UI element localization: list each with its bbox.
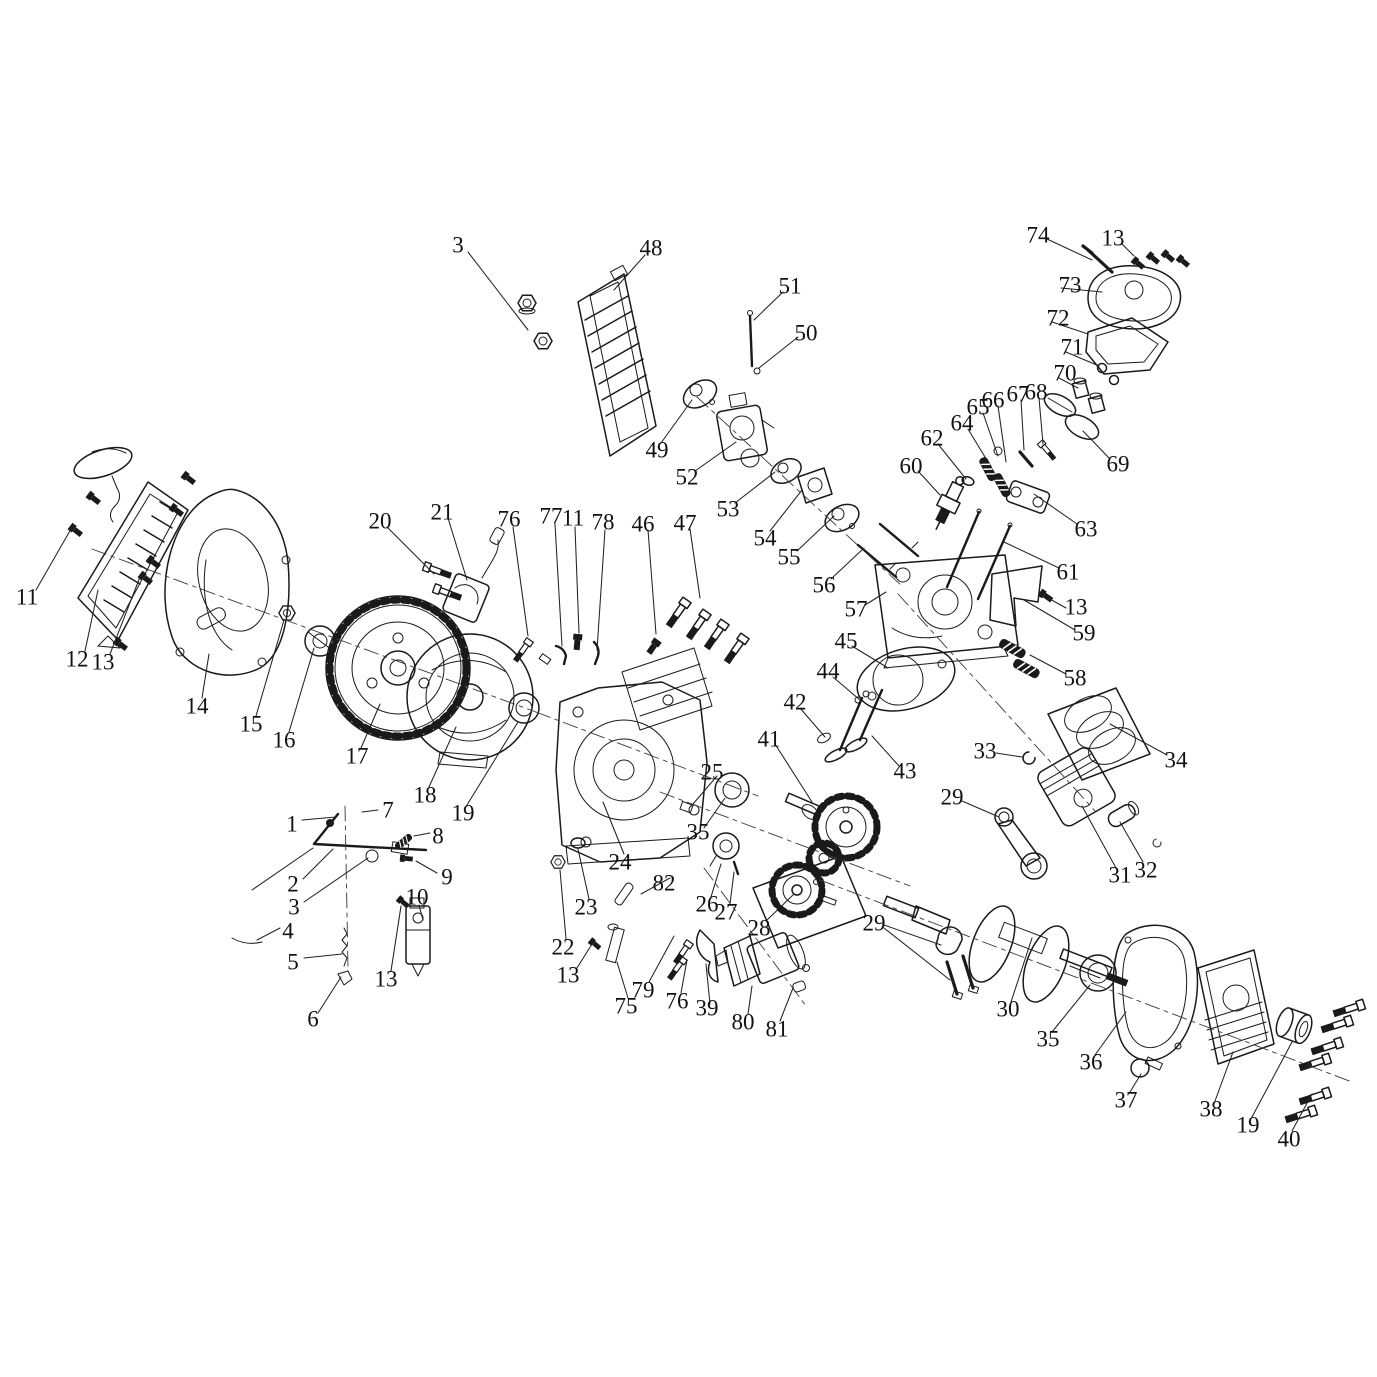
throttle-wire [232,938,262,943]
part-number-35: 35 [1037,1027,1060,1052]
part-number-30: 30 [997,997,1020,1022]
leader-line [1252,1042,1292,1117]
part-number-33: 33 [974,739,997,764]
leader-line [303,849,333,879]
leader-line [648,530,656,634]
part-number-8: 8 [432,824,444,849]
part-number-3: 3 [288,895,300,920]
insulator-spacer [798,468,832,503]
part-number-42: 42 [784,690,807,715]
head-bolts [645,597,749,665]
leader-line [962,801,999,817]
valve-cover-screws [1131,249,1191,271]
leader-line [85,590,98,651]
leader-line [555,524,562,646]
part-number-58: 58 [1064,666,1087,691]
leader-line [318,977,341,1013]
part-number-13: 13 [1102,226,1125,251]
part-number-21: 21 [431,500,454,525]
part-number-7: 7 [382,798,394,823]
leader-line [831,548,864,579]
leader-line [575,527,579,633]
leader-line [1082,806,1116,868]
leader-line [759,337,798,368]
part-number-2: 2 [287,872,299,897]
part-number-11: 11 [16,585,38,610]
part-number-4: 4 [282,919,294,944]
plug-washer [961,475,975,487]
leader-line [110,577,140,654]
part-number-13: 13 [92,650,115,675]
part-number-18: 18 [414,783,437,808]
push-rods [947,509,1012,599]
diagram-page: 1233456789101111121313131313141516171819… [0,0,1377,1377]
part-number-66: 66 [982,388,1005,413]
spring-seat [816,731,832,745]
pivot-stud [1037,440,1057,462]
part-number-73: 73 [1059,273,1082,298]
breather-screw [588,937,602,951]
crankcase-cover [1198,950,1274,1064]
part-number-51: 51 [779,274,802,299]
part-number-9: 9 [441,865,453,890]
leader-line [1021,400,1024,450]
leader-line [468,252,528,330]
bracket-bolt [672,940,693,966]
intake-gasket [678,374,721,413]
part-number-69: 69 [1107,452,1130,477]
part-number-22: 22 [552,935,575,960]
part-number-27: 27 [715,900,738,925]
rocker-bracket [1005,480,1050,514]
leader-line [775,744,812,802]
valve-tappets [1072,378,1104,413]
part-number-62: 62 [921,426,944,451]
leader-line [414,833,430,836]
part-number-24: 24 [609,850,633,875]
part-number-5: 5 [287,950,299,975]
leader-line [1011,938,1032,1002]
rocker-pivot-pin [1020,452,1032,466]
part-number-25: 25 [701,760,724,785]
part-number-46: 46 [632,512,655,537]
part-number-82: 82 [653,871,676,896]
part-number-56: 56 [813,573,836,598]
part-number-77: 77 [540,504,563,529]
part-number-16: 16 [273,728,296,753]
leader-line [865,592,886,605]
small-hardware-row [512,634,598,665]
pin-clip [1153,839,1161,847]
leader-line [597,530,605,650]
cylinder-studs [858,524,918,577]
head-gasket [850,636,963,721]
ball-bearing-front [509,693,539,723]
leader-line [257,928,280,940]
connecting-rod [995,808,1047,879]
part-number-76: 76 [666,989,689,1014]
spark-plug [927,473,970,534]
cooling-fan [407,634,533,768]
leader-line [202,654,209,698]
governor-spring [342,928,347,966]
part-number-79: 79 [632,978,655,1003]
stud-screw [754,368,760,374]
linkage-screw [400,854,413,862]
piston-pin [1106,800,1141,829]
oil-sensor-unit [406,898,430,976]
part-number-38: 38 [1200,1097,1223,1122]
shroud-screw [1038,589,1054,604]
part-number-44: 44 [817,659,841,684]
centerline [92,549,536,712]
part-number-52: 52 [676,465,699,490]
part-number-12: 12 [66,647,89,672]
leader-line [362,810,378,812]
part-number-15: 15 [240,712,263,737]
part-number-10: 10 [406,885,429,910]
part-number-63: 63 [1075,517,1098,542]
part-number-1: 1 [286,812,298,837]
housing-screws [68,471,197,652]
part-number-28: 28 [748,916,771,941]
part-number-81: 81 [766,1017,789,1042]
leader-line [603,802,624,854]
part-number-19: 19 [1237,1113,1260,1138]
leader-line [304,954,342,958]
part-number-17: 17 [346,744,369,769]
leader-line [1004,542,1059,568]
part-number-40: 40 [1278,1127,1301,1152]
leader-line [1120,822,1143,862]
rod-cap-and-bolts [936,927,979,999]
leader-line [1048,598,1066,608]
part-number-29: 29 [863,911,886,936]
exploded-engine-diagram: 1233456789101111121313131313141516171819… [0,0,1377,1377]
insulator-gasket [820,499,863,537]
leader-line [1110,724,1167,755]
coil-bolt [422,562,452,580]
carburetor [716,393,774,467]
part-number-55: 55 [778,545,801,570]
part-number-72: 72 [1047,306,1070,331]
leader-line [695,442,736,471]
part-number-78: 78 [592,510,615,535]
leader-line [998,406,1006,462]
leader-line [797,516,834,551]
governor-assembly [710,833,739,874]
part-number-49: 49 [646,438,669,463]
recoil-starter-assembly [70,441,188,648]
part-number-11: 11 [562,506,584,531]
part-number-48: 48 [640,236,663,261]
breather-tube [614,882,634,906]
valves [816,690,882,765]
part-number-20: 20 [369,509,392,534]
valve-spring [1012,658,1041,680]
part-number-43: 43 [894,759,917,784]
part-number-3: 3 [452,233,464,258]
part-number-68: 68 [1025,380,1048,405]
piston [1035,745,1118,829]
leader-line [1052,985,1090,1032]
leader-line [513,527,528,636]
part-number-50: 50 [795,321,818,346]
leader-line [690,529,700,598]
centerline [536,712,758,796]
part-number-6: 6 [307,1007,319,1032]
leader-line [448,518,467,580]
part-number-13: 13 [375,967,398,992]
part-number-32: 32 [1135,858,1158,883]
shaft-spacer [1273,1006,1315,1046]
part-number-80: 80 [732,1010,755,1035]
part-number-54: 54 [754,526,778,551]
part-number-70: 70 [1054,361,1077,386]
leader-line [1039,398,1043,444]
crankshaft [883,896,1128,1008]
cover-bolts [1284,999,1366,1124]
part-number-61: 61 [1057,560,1080,585]
leader-line [1034,494,1077,524]
part-number-53: 53 [717,497,740,522]
part-number-13: 13 [557,963,580,988]
starter-handle [70,441,135,484]
part-number-19: 19 [452,801,475,826]
leader-line [391,906,401,971]
muffler [578,265,656,456]
pin-circlip [1023,752,1035,764]
part-number-31: 31 [1109,863,1132,888]
leader-line [735,472,775,503]
crankcase-cover-gasket [1113,925,1197,1060]
part-number-29: 29 [941,785,964,810]
muffler-nuts [518,295,552,349]
leader-line [996,753,1022,757]
part-number-41: 41 [758,727,781,752]
part-number-59: 59 [1073,621,1096,646]
part-number-14: 14 [186,694,210,719]
part-number-71: 71 [1061,335,1084,360]
leader-line [387,527,434,574]
leader-line [416,861,437,873]
part-number-74: 74 [1027,223,1051,248]
part-number-47: 47 [674,511,697,536]
part-number-23: 23 [575,895,598,920]
leader-line [560,870,566,939]
leader-line [304,858,368,902]
flywheel [326,596,470,740]
part-number-36: 36 [1080,1050,1103,1075]
leader-line [36,529,71,590]
part-number-76: 76 [498,507,521,532]
spring [992,472,1012,498]
part-number-labels-layer: 1233456789101111121313131313141516171819… [16,223,1301,1152]
part-number-39: 39 [696,996,719,1021]
part-number-34: 34 [1165,748,1189,773]
head-shroud-plate [990,566,1042,626]
part-number-57: 57 [845,597,868,622]
part-number-37: 37 [1115,1088,1138,1113]
part-number-60: 60 [900,454,923,479]
leader-line [289,648,314,732]
part-number-45: 45 [835,629,858,654]
part-number-13: 13 [1065,595,1088,620]
part-number-35: 35 [687,820,710,845]
leader-line [884,928,950,980]
